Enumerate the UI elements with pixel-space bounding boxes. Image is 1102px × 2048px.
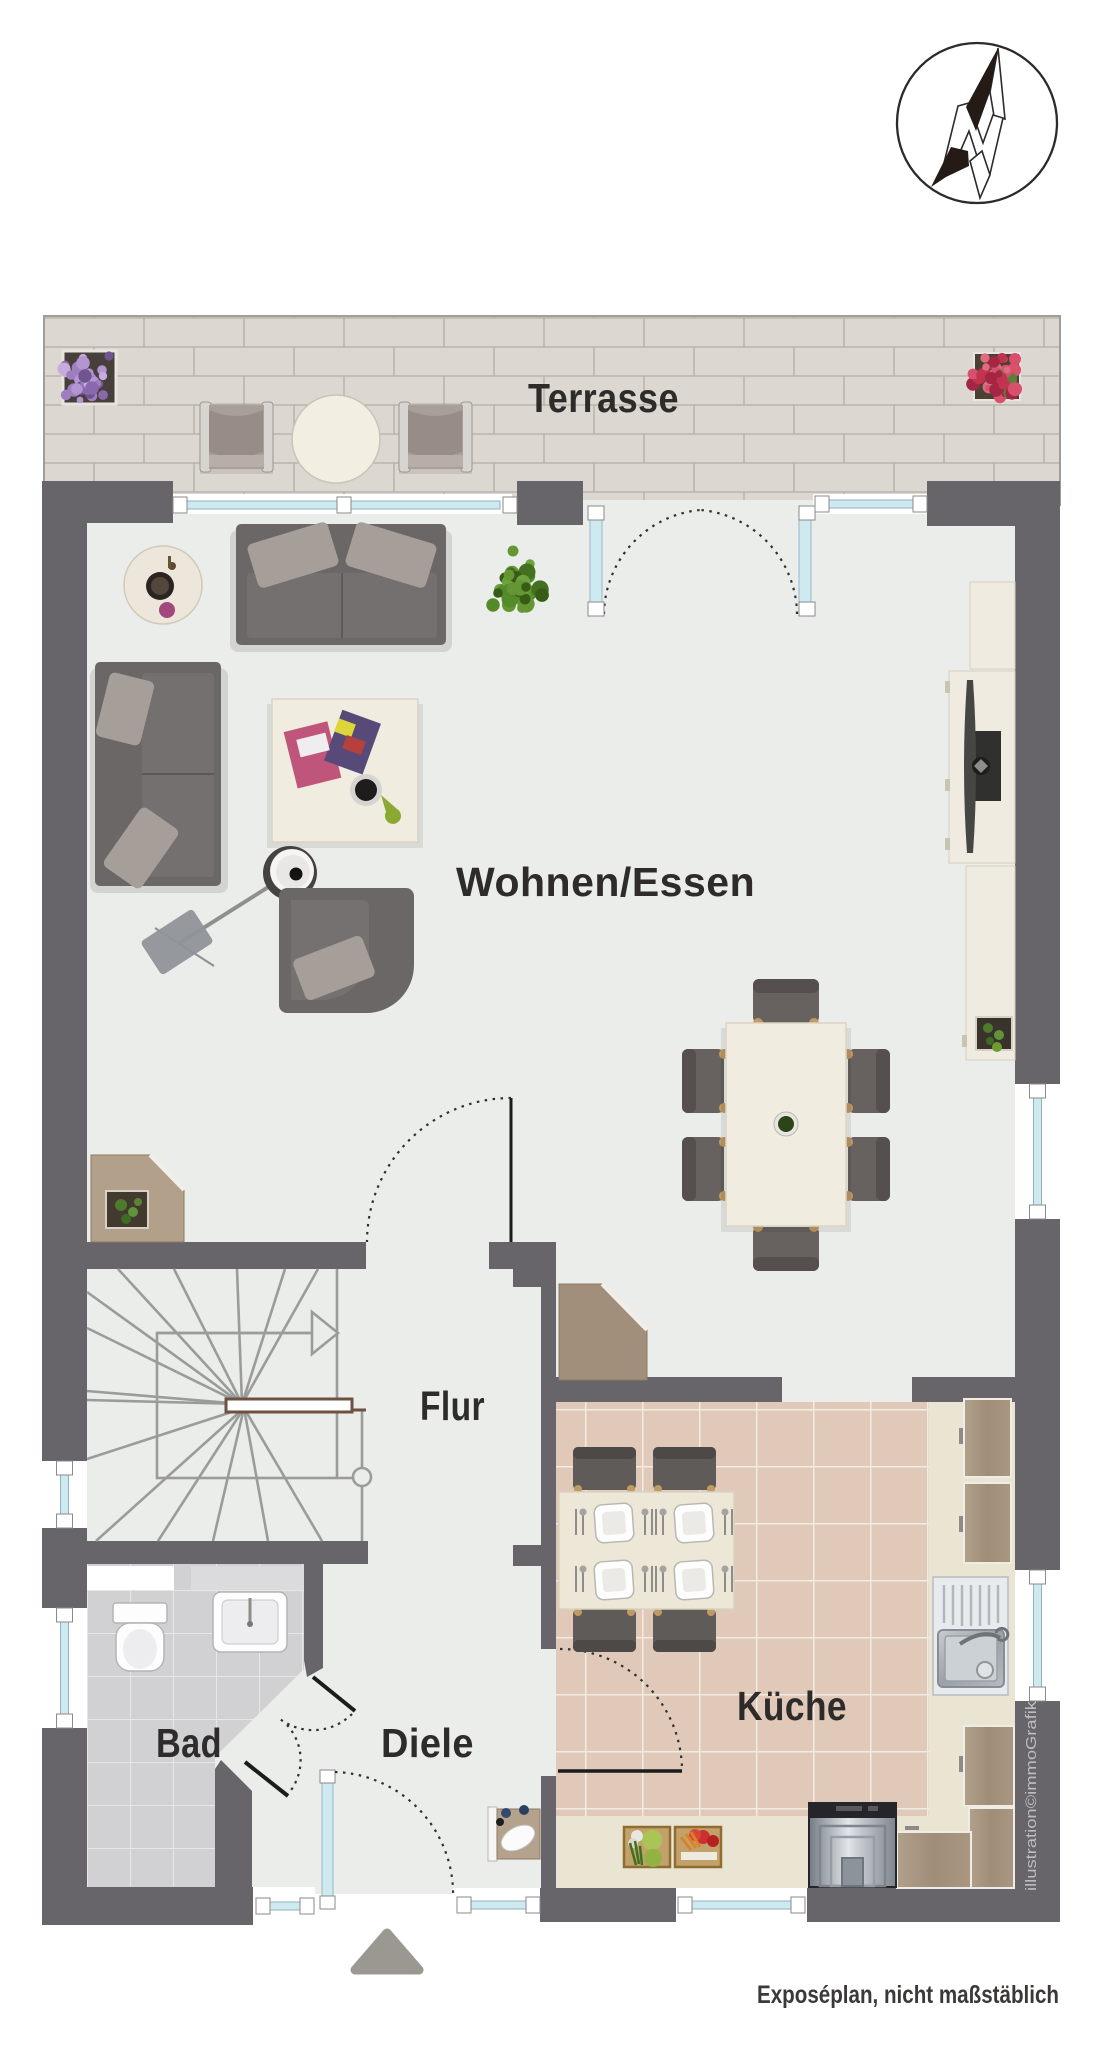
svg-text:Bad: Bad [156, 1720, 222, 1766]
svg-text:Flur: Flur [420, 1383, 485, 1429]
svg-text:illustration©immoGrafik: illustration©immoGrafik [1023, 1700, 1040, 1891]
svg-text:Terrasse: Terrasse [528, 375, 679, 421]
svg-text:Exposéplan, nicht maßstäblich: Exposéplan, nicht maßstäblich [757, 1981, 1059, 2009]
svg-text:Wohnen/Essen: Wohnen/Essen [456, 859, 755, 905]
svg-text:Küche: Küche [737, 1683, 847, 1729]
svg-text:Diele: Diele [381, 1720, 474, 1766]
